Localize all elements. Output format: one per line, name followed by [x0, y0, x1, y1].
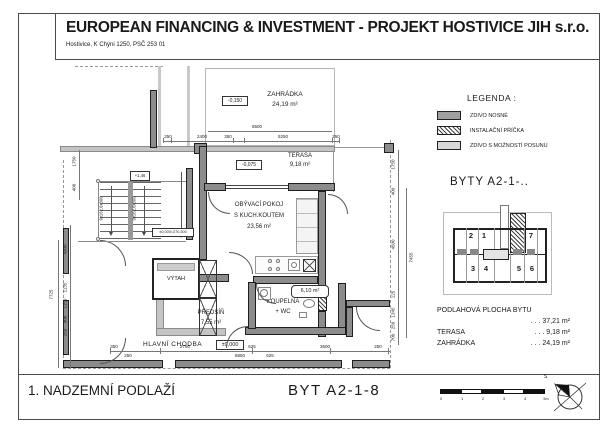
dim-label: 250 — [63, 321, 68, 345]
dim-label: 1750 — [391, 153, 396, 177]
north-arrow-icon — [549, 375, 589, 413]
wall-bearing — [318, 191, 326, 287]
north-label: S — [544, 374, 547, 380]
dim-line — [398, 150, 399, 345]
stair-direction-arrow — [144, 186, 145, 232]
window — [226, 185, 288, 189]
key-plan-unit-number: 6 — [527, 264, 537, 273]
dim-label: 700 — [391, 326, 396, 350]
elevator-machine — [157, 263, 195, 271]
dim-label: 3500 — [317, 344, 333, 349]
dim-line — [406, 188, 407, 338]
room-label-terasa: TERASA 9,18 m² — [265, 152, 335, 170]
dim-tick — [244, 138, 245, 143]
level-marker: -0,075 — [236, 160, 262, 170]
sheet-subtitle: Hostivice, K Chýni 1250, PSČ 253 01 — [66, 42, 165, 48]
dim-label: 250 — [328, 134, 344, 139]
stove-burner — [268, 259, 272, 263]
landing-line — [78, 241, 186, 242]
boundary-line — [75, 66, 163, 67]
sink-basin — [291, 262, 297, 268]
dim-line — [208, 131, 332, 132]
room-area-box: 6,10 m² — [291, 285, 329, 298]
dim-label: 4300 — [63, 238, 68, 262]
room-label-zahradka: ZAHRÁDKA 24,19 m² — [240, 90, 330, 110]
scale-bar-segment — [503, 389, 524, 394]
key-plan-unit-number: 5 — [514, 264, 524, 273]
scale-bar-segment — [524, 389, 545, 394]
dim-tick — [388, 348, 389, 354]
stove-burner — [276, 259, 280, 263]
dim-label: 2400 — [194, 134, 210, 139]
scale-tick-label: 4 — [520, 397, 530, 401]
floor-title: 1. NADZEMNÍ PODLAŽÍ — [28, 383, 175, 398]
dim-label: 8500 — [245, 124, 269, 129]
dim-label: 250 — [120, 353, 136, 358]
arrowhead-icon — [109, 232, 113, 236]
room-name: ZAHRÁDKA — [240, 90, 330, 100]
wall-bearing — [150, 90, 157, 148]
wall-bearing — [346, 300, 390, 307]
key-plan-detail — [513, 249, 522, 255]
dim-label: 5250 — [275, 134, 291, 139]
wall-bearing — [204, 183, 226, 191]
stair-flight — [100, 182, 128, 240]
installation-shaft — [199, 260, 217, 298]
arrowhead-icon — [142, 232, 146, 236]
scale-tick-label: 1 — [457, 397, 467, 401]
dim-line — [79, 150, 80, 200]
dim-label: 4500 — [391, 233, 396, 257]
legend-item-label: INSTALAČNÍ PŘÍČKA — [470, 128, 524, 134]
stove-burner — [276, 267, 280, 271]
legend-title: LEGENDA : — [467, 93, 516, 103]
key-plan-unit-number: 1 — [479, 231, 489, 240]
unit-title: BYT A2-1-8 — [288, 382, 380, 399]
dim-label: 350 — [106, 344, 122, 349]
wall-bearing — [245, 327, 346, 335]
garden-wall-line — [187, 66, 190, 146]
key-plan-unit-number: 3 — [468, 264, 478, 273]
wall-pillar — [384, 143, 394, 153]
scale-bar-segment — [440, 389, 461, 394]
level-marker: +1,46 — [130, 171, 150, 181]
dim-label: 625 — [262, 353, 278, 358]
stair-flight-label: 9x162,6x300 — [99, 197, 104, 221]
key-plan-unit-number: 4 — [481, 264, 491, 273]
dim-label: 350 — [220, 134, 236, 139]
dim-line — [58, 240, 59, 368]
dim-label: 7455 — [409, 246, 414, 270]
area-row-label: PODLAHOVÁ PLOCHA BYTU — [437, 307, 532, 314]
legend-swatch-bearing — [437, 111, 461, 120]
room-area: 9,18 m² — [265, 161, 335, 170]
unit-group-title: BYTY A2-1-.. — [450, 176, 529, 188]
wall-bearing — [253, 276, 318, 284]
room-area: 24,19 m² — [240, 100, 330, 110]
legend-item-label: ZDIVO S MOŽNOSTÍ POSUNU — [470, 143, 548, 149]
stair-direction-arrow — [111, 186, 112, 232]
appliance-box — [303, 259, 316, 272]
room-name: PŘEDSÍŇ — [170, 308, 252, 318]
scale-bar-segment — [461, 389, 482, 394]
legend-swatch-movable — [437, 141, 461, 150]
stove-burner — [268, 267, 272, 271]
dim-label: 2750 — [177, 344, 193, 349]
key-plan-stair-core — [483, 249, 509, 260]
sheet-title: EUROPEAN FINANCING & INVESTMENT - PROJEK… — [66, 19, 589, 37]
dim-line — [70, 225, 71, 368]
key-plan-line — [524, 228, 525, 283]
thin-wall-line — [335, 147, 384, 148]
key-plan-detail — [457, 249, 466, 255]
wall-bearing — [199, 146, 207, 260]
room-label-chodba: HLAVNÍ CHODBA — [143, 341, 202, 348]
dim-label: 1750 — [72, 150, 77, 174]
room-label-predsin: PŘEDSÍŇ 7,55 m² — [170, 308, 252, 328]
wall-bearing — [63, 360, 163, 368]
wall-bearing — [352, 360, 390, 368]
dim-line — [110, 351, 390, 352]
wall-bearing — [175, 360, 342, 368]
stair-direction-arrow — [181, 172, 182, 234]
dim-label: 400 — [72, 176, 77, 200]
key-plan-detail — [527, 249, 535, 255]
area-row-value: . . . 37,21 m² — [470, 318, 570, 325]
key-plan-line — [537, 228, 538, 283]
scale-tick-label: 3 — [499, 397, 509, 401]
stair-flight-label: 9x162,6x300 — [132, 197, 137, 221]
wall-bearing — [288, 183, 335, 191]
level-marker: ±0,000=270,300 — [152, 228, 194, 237]
key-plan-unit-number: 7 — [526, 231, 536, 240]
scale-tick-label: 2 — [478, 397, 488, 401]
toilet — [303, 299, 315, 308]
key-plan-line — [510, 253, 511, 283]
area-row-label: TERASA — [437, 329, 465, 336]
dim-label: 250 — [160, 134, 176, 139]
dim-label: 8850 — [232, 353, 248, 358]
area-row-value: . . . 9,18 m² — [470, 329, 570, 336]
area-row-value: . . . 24,19 m² — [470, 340, 570, 347]
dim-label: 7725 — [49, 283, 54, 307]
scale-bar-segment — [482, 389, 503, 394]
room-name: TERASA — [265, 152, 335, 161]
dim-line — [163, 141, 340, 142]
drawing-sheet: EUROPEAN FINANCING & INVESTMENT - PROJEK… — [0, 0, 615, 435]
legend-swatch-partition — [437, 126, 461, 135]
room-area: 23,56 m² — [213, 222, 305, 233]
dim-tick — [160, 348, 161, 354]
boundary-line — [63, 368, 390, 369]
room-label-vytah: VÝTAH — [152, 276, 200, 282]
key-plan-detail — [470, 249, 478, 255]
legend-item-label: ZDIVO NOSNÉ — [470, 113, 508, 119]
kitchen-counter — [296, 198, 318, 254]
dim-label: 250 — [370, 344, 386, 349]
dim-label: 625 — [244, 344, 260, 349]
key-plan-unit-number: 2 — [466, 231, 476, 240]
dim-label: 400 — [391, 180, 396, 204]
handrail-post — [96, 179, 100, 183]
level-marker: -0,150 — [222, 96, 248, 106]
scale-tick-label: 0 — [436, 397, 446, 401]
bath-fixture — [299, 312, 307, 318]
wall-bearing — [346, 307, 353, 337]
